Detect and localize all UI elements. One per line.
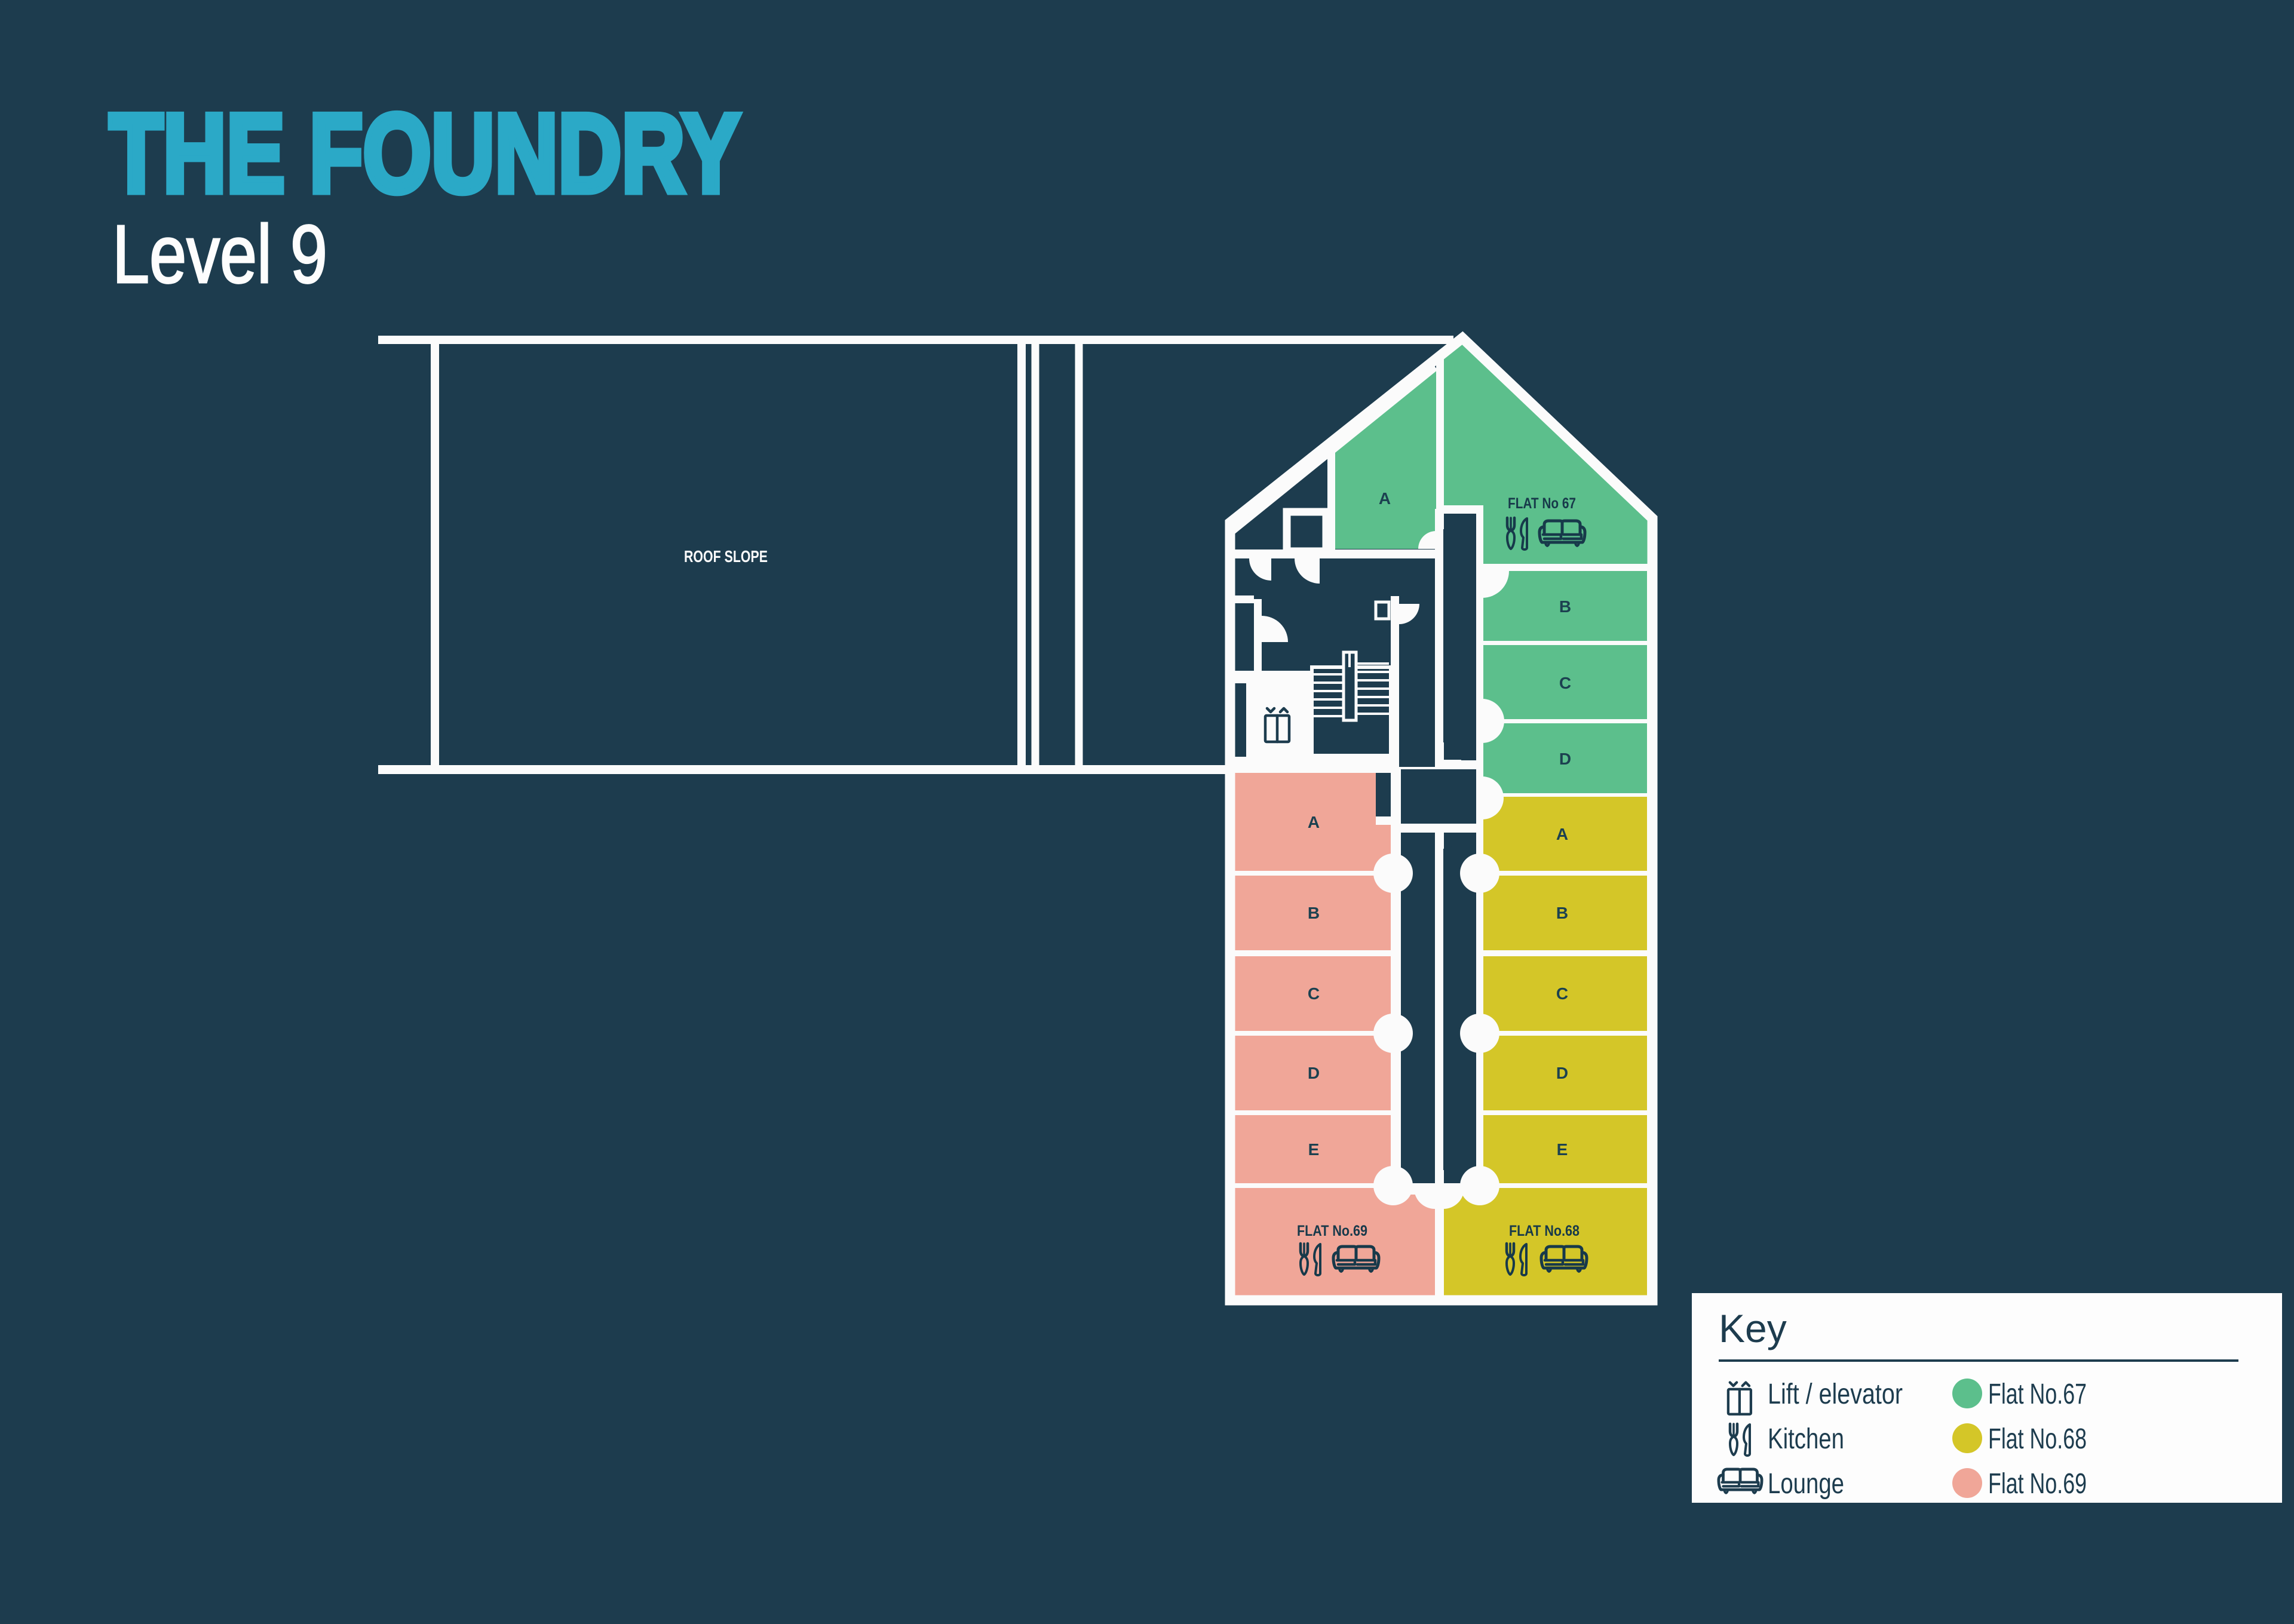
svg-text:Kitchen: Kitchen: [1768, 1423, 1844, 1455]
svg-text:THE FOUNDRY: THE FOUNDRY: [109, 91, 740, 216]
svg-text:Lounge: Lounge: [1768, 1468, 1844, 1500]
svg-text:B: B: [1559, 597, 1571, 616]
svg-text:B: B: [1556, 904, 1568, 922]
svg-text:C: C: [1559, 674, 1571, 692]
svg-text:Flat No.68: Flat No.68: [1988, 1423, 2087, 1455]
svg-text:FLAT No.69: FLAT No.69: [1297, 1223, 1367, 1239]
svg-text:Flat No.69: Flat No.69: [1988, 1468, 2087, 1500]
svg-text:Key: Key: [1719, 1306, 1787, 1350]
svg-text:A: A: [1308, 813, 1320, 831]
svg-text:FLAT No 67: FLAT No 67: [1508, 495, 1576, 512]
svg-text:A: A: [1379, 489, 1391, 508]
svg-text:E: E: [1557, 1140, 1568, 1159]
svg-text:D: D: [1308, 1064, 1320, 1082]
svg-text:A: A: [1556, 825, 1568, 843]
svg-text:Lift / elevator: Lift / elevator: [1768, 1379, 1903, 1410]
svg-text:B: B: [1308, 904, 1320, 922]
svg-text:ROOF SLOPE: ROOF SLOPE: [684, 547, 768, 566]
svg-text:C: C: [1308, 984, 1320, 1003]
svg-text:FLAT No.68: FLAT No.68: [1509, 1223, 1580, 1239]
svg-text:Flat No.67: Flat No.67: [1988, 1379, 2087, 1410]
svg-text:C: C: [1556, 984, 1568, 1003]
svg-text:Level 9: Level 9: [112, 208, 327, 300]
svg-text:E: E: [1308, 1140, 1320, 1159]
svg-text:D: D: [1559, 750, 1571, 768]
svg-text:D: D: [1556, 1064, 1568, 1082]
